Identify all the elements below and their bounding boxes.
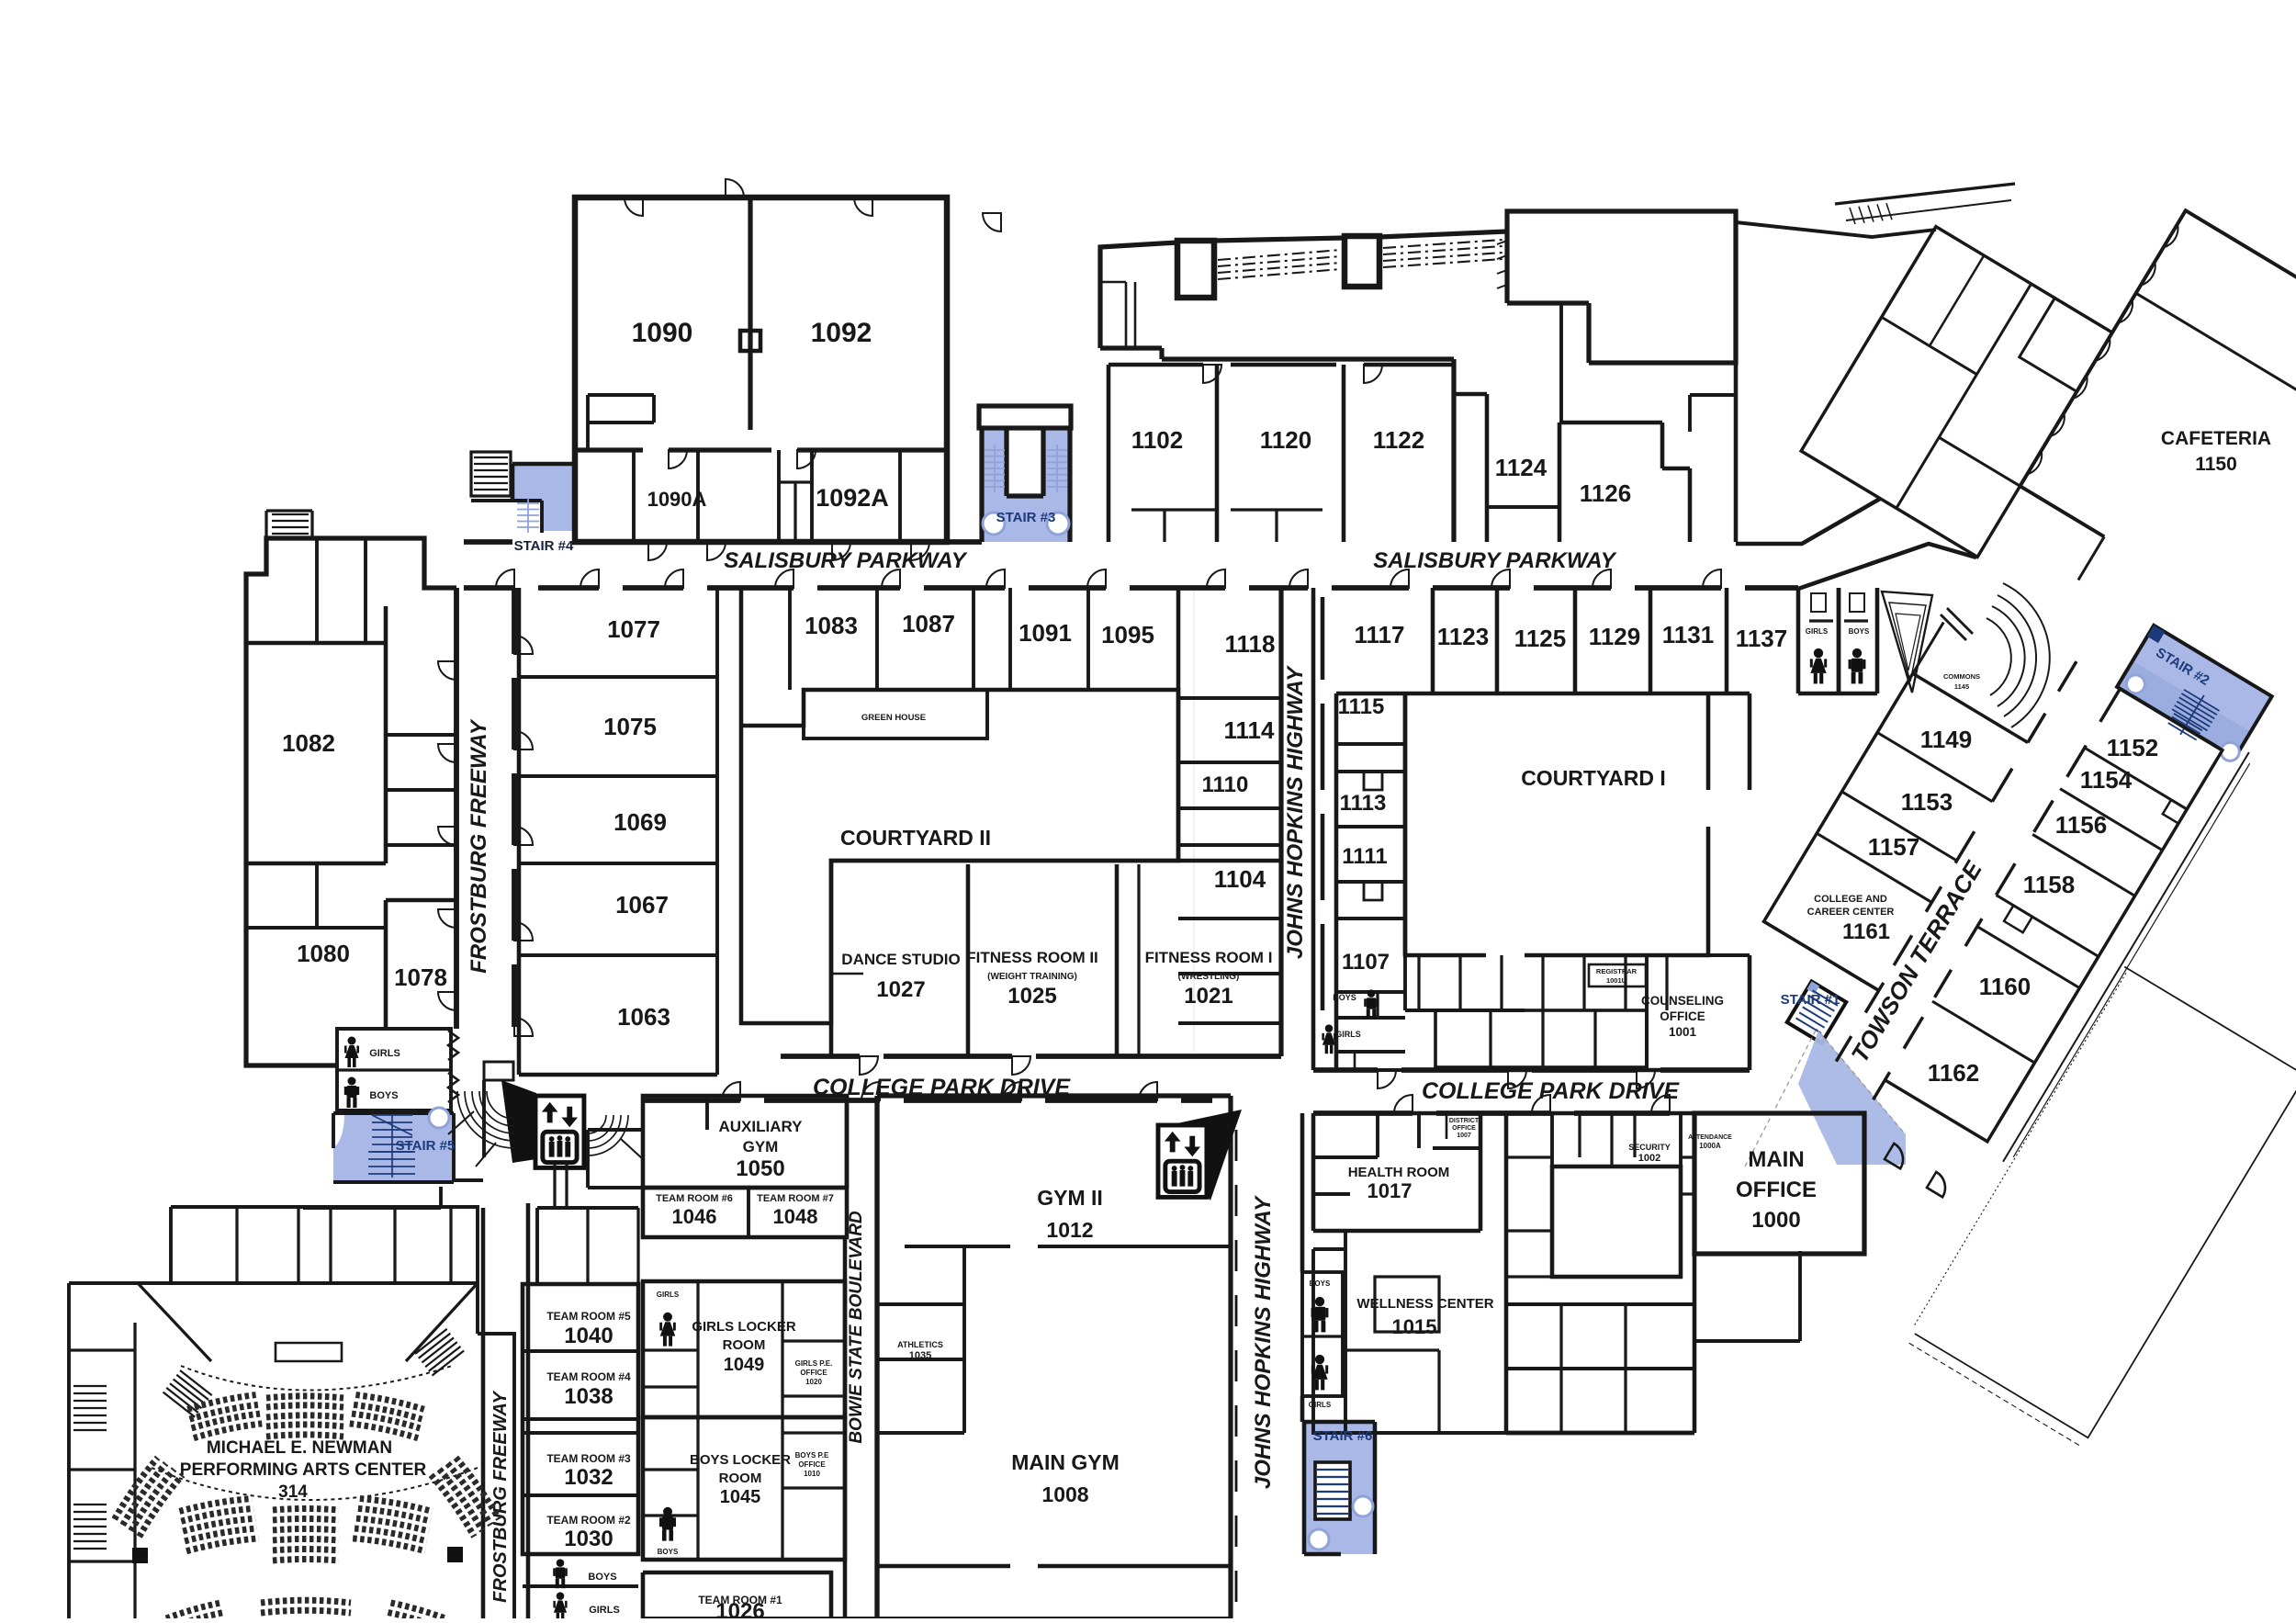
svg-text:SALISBURY PARKWAY: SALISBURY PARKWAY — [724, 548, 968, 573]
svg-text:SECURITY: SECURITY — [1628, 1143, 1671, 1152]
svg-text:1078: 1078 — [394, 964, 447, 991]
svg-text:BOYS LOCKER: BOYS LOCKER — [690, 1452, 791, 1468]
svg-text:TEAM ROOM #6: TEAM ROOM #6 — [656, 1193, 733, 1204]
svg-text:TEAM ROOM #5: TEAM ROOM #5 — [546, 1310, 631, 1323]
svg-text:GREEN HOUSE: GREEN HOUSE — [861, 713, 926, 723]
svg-text:DISTRICT: DISTRICT — [1449, 1118, 1480, 1124]
svg-text:COURTYARD II: COURTYARD II — [840, 826, 991, 850]
svg-text:OFFICE: OFFICE — [1660, 1009, 1705, 1023]
svg-text:1123: 1123 — [1437, 623, 1489, 650]
svg-text:1046: 1046 — [672, 1205, 717, 1228]
svg-text:1007: 1007 — [1457, 1133, 1471, 1139]
svg-text:1150: 1150 — [2195, 454, 2237, 475]
svg-text:FITNESS ROOM I: FITNESS ROOM I — [1145, 949, 1273, 966]
svg-text:1122: 1122 — [1373, 426, 1424, 454]
svg-text:1049: 1049 — [724, 1355, 765, 1375]
svg-text:1118: 1118 — [1225, 630, 1276, 658]
svg-text:MICHAEL E. NEWMAN: MICHAEL E. NEWMAN — [207, 1438, 392, 1458]
svg-text:1124: 1124 — [1495, 454, 1548, 481]
svg-text:WELLNESS CENTER: WELLNESS CENTER — [1356, 1296, 1493, 1312]
svg-text:1120: 1120 — [1260, 426, 1311, 454]
svg-text:1082: 1082 — [282, 729, 335, 757]
svg-text:STAIR #6: STAIR #6 — [1313, 1428, 1373, 1444]
svg-text:1129: 1129 — [1589, 623, 1640, 650]
svg-text:1102: 1102 — [1131, 426, 1183, 454]
svg-text:1131: 1131 — [1662, 621, 1714, 648]
svg-text:1080: 1080 — [297, 940, 350, 967]
svg-text:STAIR #3: STAIR #3 — [996, 510, 1056, 525]
svg-text:1015: 1015 — [1392, 1315, 1437, 1338]
svg-text:1050: 1050 — [736, 1156, 784, 1181]
svg-text:1149: 1149 — [1920, 726, 1972, 753]
svg-text:1156: 1156 — [2055, 811, 2107, 839]
svg-text:FITNESS ROOM II: FITNESS ROOM II — [966, 949, 1098, 966]
svg-text:1012: 1012 — [1046, 1218, 1093, 1242]
svg-text:1010: 1010 — [804, 1470, 820, 1478]
svg-text:COLLEGE PARK DRIVE: COLLEGE PARK DRIVE — [1422, 1078, 1680, 1104]
svg-text:BOYS P.E: BOYS P.E — [795, 1451, 829, 1460]
svg-text:STAIR #4: STAIR #4 — [514, 538, 574, 554]
svg-text:TEAM ROOM #7: TEAM ROOM #7 — [757, 1193, 834, 1204]
svg-text:1137: 1137 — [1736, 625, 1787, 652]
svg-text:MAIN: MAIN — [1748, 1147, 1804, 1172]
svg-text:1152: 1152 — [2107, 734, 2158, 761]
svg-text:1063: 1063 — [617, 1003, 670, 1031]
svg-text:1153: 1153 — [1901, 788, 1953, 816]
svg-text:1154: 1154 — [2080, 766, 2133, 794]
svg-text:1092A: 1092A — [816, 484, 889, 512]
svg-text:1087: 1087 — [902, 610, 955, 637]
svg-text:HEALTH ROOM: HEALTH ROOM — [1348, 1165, 1450, 1180]
svg-text:1091: 1091 — [1019, 619, 1072, 647]
svg-text:1017: 1017 — [1367, 1179, 1412, 1202]
svg-text:1158: 1158 — [2023, 871, 2075, 898]
svg-text:JOHNS HOPKINS HIGHWAY: JOHNS HOPKINS HIGHWAY — [1251, 1195, 1276, 1489]
svg-text:1008: 1008 — [1041, 1482, 1088, 1506]
svg-text:JOHNS HOPKINS HIGHWAY: JOHNS HOPKINS HIGHWAY — [1283, 665, 1308, 959]
svg-text:GIRLS P.E.: GIRLS P.E. — [795, 1359, 833, 1368]
svg-text:(WRESTLING): (WRESTLING) — [1178, 972, 1240, 982]
svg-text:1021: 1021 — [1184, 984, 1232, 1009]
svg-text:ATTENDANCE: ATTENDANCE — [1688, 1134, 1732, 1141]
svg-text:GIRLS: GIRLS — [589, 1605, 620, 1616]
svg-text:FROSTBURG FREEWAY: FROSTBURG FREEWAY — [467, 718, 491, 974]
svg-text:GYM II: GYM II — [1037, 1186, 1103, 1210]
svg-text:SALISBURY PARKWAY: SALISBURY PARKWAY — [1373, 548, 1617, 573]
svg-text:REGISTRAR: REGISTRAR — [1596, 967, 1638, 975]
svg-text:1026: 1026 — [715, 1599, 764, 1618]
svg-text:1032: 1032 — [564, 1465, 613, 1490]
svg-text:1126: 1126 — [1580, 479, 1631, 507]
svg-text:1030: 1030 — [564, 1527, 613, 1551]
svg-text:GIRLS LOCKER: GIRLS LOCKER — [692, 1319, 796, 1335]
svg-text:1025: 1025 — [1007, 984, 1056, 1009]
svg-text:1160: 1160 — [1979, 973, 2031, 1000]
svg-text:GIRLS: GIRLS — [1335, 1030, 1361, 1039]
svg-text:1002: 1002 — [1638, 1153, 1660, 1164]
svg-text:1000A: 1000A — [1699, 1142, 1721, 1150]
svg-text:BOYS: BOYS — [1333, 993, 1356, 1002]
svg-text:1020: 1020 — [805, 1378, 822, 1386]
svg-text:1000: 1000 — [1751, 1208, 1800, 1233]
svg-text:1083: 1083 — [805, 612, 858, 639]
svg-text:1035: 1035 — [909, 1350, 931, 1361]
svg-text:1115: 1115 — [1338, 694, 1385, 719]
svg-text:COLLEGE AND: COLLEGE AND — [1814, 894, 1887, 905]
svg-text:TEAM ROOM #3: TEAM ROOM #3 — [546, 1452, 631, 1465]
svg-text:BOYS: BOYS — [588, 1572, 616, 1583]
svg-text:1095: 1095 — [1101, 621, 1154, 648]
svg-text:1001U: 1001U — [1606, 976, 1626, 985]
svg-text:1125: 1125 — [1514, 625, 1566, 652]
svg-text:1110: 1110 — [1202, 772, 1249, 797]
svg-text:MAIN GYM: MAIN GYM — [1011, 1450, 1120, 1474]
svg-text:1045: 1045 — [720, 1487, 761, 1507]
svg-text:1107: 1107 — [1342, 950, 1390, 975]
svg-text:PERFORMING ARTS CENTER: PERFORMING ARTS CENTER — [180, 1460, 427, 1480]
svg-text:GIRLS: GIRLS — [369, 1048, 400, 1059]
svg-text:BOWIE STATE BOULEVARD: BOWIE STATE BOULEVARD — [847, 1211, 866, 1444]
svg-text:1001: 1001 — [1669, 1025, 1697, 1039]
svg-text:GYM: GYM — [743, 1138, 779, 1155]
svg-text:TEAM ROOM #2: TEAM ROOM #2 — [546, 1514, 631, 1527]
svg-text:1104: 1104 — [1214, 865, 1266, 893]
svg-text:1114: 1114 — [1224, 716, 1276, 744]
svg-text:1092: 1092 — [811, 318, 872, 348]
svg-text:1077: 1077 — [607, 615, 660, 643]
svg-text:COUNSELING: COUNSELING — [1641, 994, 1724, 1008]
svg-text:1090: 1090 — [632, 318, 693, 348]
svg-text:1040: 1040 — [564, 1324, 613, 1348]
svg-text:BOYS: BOYS — [369, 1090, 398, 1101]
svg-text:1027: 1027 — [876, 977, 925, 1002]
svg-text:COURTYARD I: COURTYARD I — [1521, 766, 1666, 790]
svg-text:TEAM ROOM #4: TEAM ROOM #4 — [546, 1370, 631, 1383]
svg-text:ATHLETICS: ATHLETICS — [897, 1340, 943, 1349]
svg-text:OFFICE: OFFICE — [1452, 1125, 1476, 1132]
svg-text:1113: 1113 — [1340, 791, 1387, 816]
svg-text:1090A: 1090A — [647, 488, 707, 511]
svg-text:1157: 1157 — [1868, 833, 1919, 861]
svg-text:1075: 1075 — [603, 713, 657, 740]
svg-text:ROOM: ROOM — [719, 1471, 762, 1486]
svg-text:1161: 1161 — [1842, 919, 1890, 944]
svg-text:GIRLS: GIRLS — [1806, 627, 1829, 636]
svg-text:1067: 1067 — [615, 891, 669, 919]
svg-text:CAREER CENTER: CAREER CENTER — [1807, 907, 1895, 918]
svg-text:1162: 1162 — [1928, 1059, 1979, 1087]
svg-text:(WEIGHT TRAINING): (WEIGHT TRAINING) — [987, 972, 1077, 982]
svg-text:DANCE STUDIO: DANCE STUDIO — [841, 951, 960, 968]
svg-text:STAIR #1: STAIR #1 — [1781, 992, 1840, 1008]
svg-text:BOYS: BOYS — [1849, 627, 1870, 636]
svg-text:COMMONS: COMMONS — [1943, 672, 1980, 681]
svg-text:1111: 1111 — [1342, 844, 1387, 869]
svg-text:1145: 1145 — [1954, 682, 1969, 691]
svg-text:1038: 1038 — [564, 1384, 613, 1409]
svg-text:FROSTBURG FREEWAY: FROSTBURG FREEWAY — [490, 1391, 511, 1603]
svg-text:1069: 1069 — [613, 808, 667, 836]
svg-text:GIRLS: GIRLS — [1309, 1401, 1332, 1409]
svg-text:GIRLS: GIRLS — [657, 1291, 680, 1299]
svg-text:1048: 1048 — [773, 1205, 818, 1228]
svg-text:OFFICE: OFFICE — [1736, 1178, 1817, 1202]
svg-text:1117: 1117 — [1355, 621, 1405, 648]
svg-text:OFFICE: OFFICE — [800, 1369, 827, 1377]
svg-text:STAIR #5: STAIR #5 — [396, 1138, 456, 1154]
svg-text:BOYS: BOYS — [1310, 1279, 1331, 1288]
svg-text:CAFETERIA: CAFETERIA — [2161, 428, 2271, 449]
svg-text:ROOM: ROOM — [723, 1337, 766, 1353]
svg-text:OFFICE: OFFICE — [798, 1460, 826, 1469]
svg-text:AUXILIARY: AUXILIARY — [719, 1118, 804, 1135]
svg-text:BOYS: BOYS — [658, 1548, 679, 1556]
